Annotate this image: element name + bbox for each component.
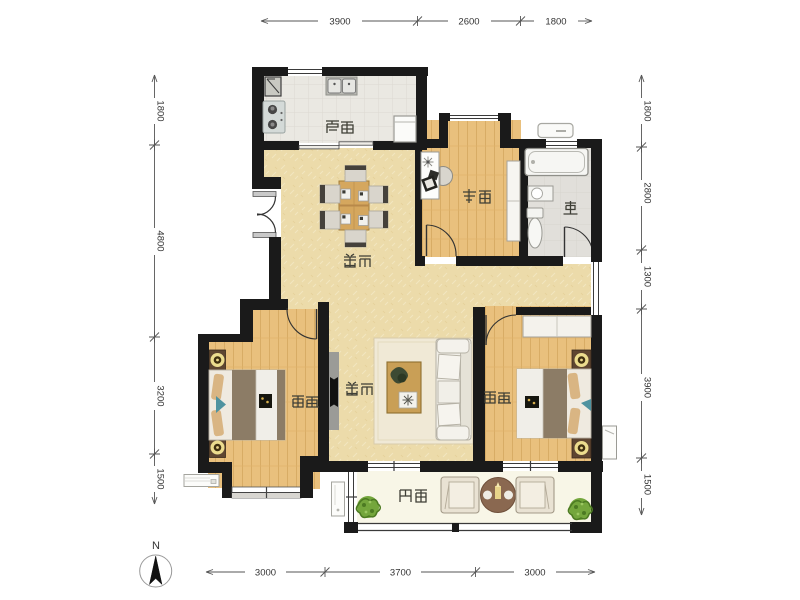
svg-text:1500: 1500 <box>155 468 166 489</box>
svg-text:3700: 3700 <box>390 568 411 579</box>
svg-text:3900: 3900 <box>642 377 653 398</box>
svg-text:2800: 2800 <box>642 182 653 203</box>
svg-text:1800: 1800 <box>545 17 566 28</box>
svg-text:3200: 3200 <box>155 385 166 406</box>
svg-text:3900: 3900 <box>329 17 350 28</box>
svg-text:1500: 1500 <box>642 474 653 495</box>
svg-text:1800: 1800 <box>155 100 166 121</box>
svg-text:N: N <box>152 540 160 552</box>
svg-text:3000: 3000 <box>255 568 276 579</box>
svg-text:4800: 4800 <box>155 230 166 251</box>
svg-text:2600: 2600 <box>458 17 479 28</box>
svg-text:1300: 1300 <box>642 266 653 287</box>
svg-text:3000: 3000 <box>524 568 545 579</box>
svg-text:1800: 1800 <box>642 100 653 121</box>
